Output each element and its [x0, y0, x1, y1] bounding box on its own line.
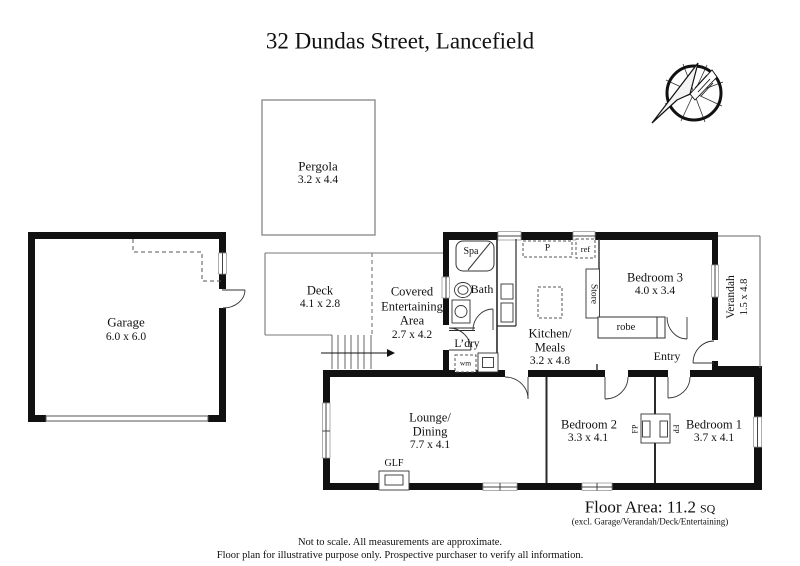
island-bench-fixture: [538, 287, 562, 318]
garage-label: Garage: [107, 314, 145, 329]
fireplace-fixture: [641, 414, 670, 443]
toilet-fixture: [455, 283, 472, 298]
covered-area-label-3: Area: [400, 314, 424, 329]
covered-area-label-2: Entertaining: [381, 300, 443, 315]
deck-dims: 4.1 x 2.8: [300, 298, 340, 312]
bedroom2-dims: 3.3 x 4.1: [568, 432, 608, 446]
washing-machine-label: wm: [460, 359, 471, 368]
bedroom3-dims: 4.0 x 3.4: [635, 285, 675, 299]
bedroom1-label: Bedroom 1: [686, 418, 742, 433]
bedroom1-dims: 3.7 x 4.1: [694, 432, 734, 446]
lounge-dims: 7.7 x 4.1: [410, 439, 450, 453]
pantry-label: P: [545, 243, 550, 254]
garage-window: [219, 253, 227, 274]
kitchen-label-1: Kitchen/: [528, 327, 571, 342]
verandah-dims: 1.5 x 4.8: [739, 275, 751, 318]
lounge-label-2: Dining: [413, 425, 448, 440]
vanity-fixture: [452, 300, 470, 323]
robe-label: robe: [617, 322, 636, 334]
floor-area-value: Floor Area: 11.2: [585, 498, 696, 517]
disclaimer-line-2: Floor plan for illustrative purpose only…: [217, 550, 583, 562]
stairs: [332, 335, 371, 369]
disclaimer-line-1: Not to scale. All measurements are appro…: [298, 537, 502, 549]
verandah-label: Verandah: [725, 275, 739, 318]
bath-label: Bath: [471, 282, 494, 296]
verandah-label-block: Verandah 1.5 x 4.8: [725, 275, 751, 318]
spa-label: Spa: [464, 246, 479, 258]
garage-dims: 6.0 x 6.0: [106, 331, 146, 345]
kitchen-dims: 3.2 x 4.8: [530, 355, 570, 369]
laundry-trough-fixture: [478, 353, 498, 372]
covered-area-dims: 2.7 x 4.2: [392, 329, 432, 343]
floorplan-page: 32 Dundas Street, Lancefield Pergola 3.2…: [0, 0, 800, 566]
bedroom3-label: Bedroom 3: [627, 271, 683, 286]
gas-log-fire-fixture: [379, 471, 409, 490]
lounge-label-1: Lounge/: [409, 411, 451, 426]
fireplace-label-right: FP: [671, 424, 680, 433]
bedroom2-label: Bedroom 2: [561, 418, 617, 433]
page-title: 32 Dundas Street, Lancefield: [266, 27, 534, 54]
pergola-label: Pergola: [298, 158, 337, 173]
laundry-label: L’dry: [454, 338, 479, 352]
floor-area-unit: SQ: [700, 502, 715, 516]
garage-side-door: [222, 290, 245, 308]
deck-label: Deck: [307, 284, 333, 299]
fridge-label: ref: [581, 243, 590, 253]
floor-area: Floor Area: 11.2 SQ: [585, 498, 716, 519]
pergola-dims: 3.2 x 4.4: [298, 174, 338, 188]
garage-dashed-nook: [133, 239, 221, 281]
store-label: Store: [587, 283, 598, 303]
floor-area-note: (excl. Garage/Verandah/Deck/Entertaining…: [572, 517, 728, 528]
garage-door-panel: [46, 416, 208, 421]
compass-icon: [652, 63, 723, 123]
entry-label: Entry: [654, 349, 681, 363]
gas-log-fire-label: GLF: [385, 458, 404, 470]
covered-area-label-1: Covered: [391, 285, 433, 300]
fireplace-label-left: FP: [630, 424, 639, 433]
bathroom-cabinet-fixture: [501, 284, 513, 322]
kitchen-label-2: Meals: [535, 341, 566, 356]
